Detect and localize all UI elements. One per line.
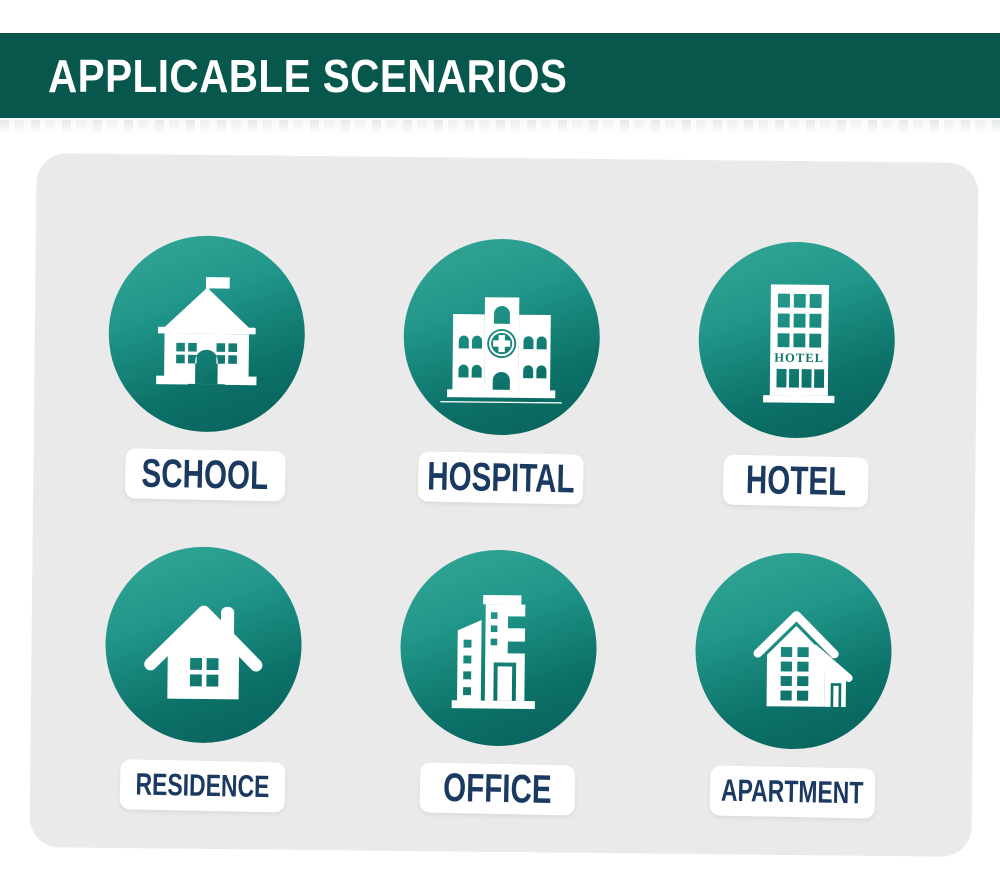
scenarios-panel: SCHOOL HOSPITAL [29,153,978,857]
scenario-cell-school: SCHOOL [90,235,323,501]
hotel-building-icon: HOTEL [730,273,863,406]
school-icon-circle [108,235,306,433]
scenario-label: RESIDENCE [135,767,270,806]
label-pill-school: SCHOOL [125,448,286,501]
header-banner: APPLICABLE SCENARIOS [0,33,1000,118]
hospital-icon-circle [403,238,601,436]
hotel-icon-circle: HOTEL [698,241,896,439]
scenario-label: APARTMENT [721,773,864,812]
hotel-sign-text: HOTEL [774,351,824,366]
torn-edge-decoration [0,120,1000,135]
apartment-icon-circle [694,552,892,750]
hospital-building-icon [435,270,568,403]
scenario-label: HOTEL [745,458,846,505]
label-pill-hotel: HOTEL [722,455,868,508]
school-building-icon [140,267,273,400]
residence-house-icon [137,578,270,711]
page-title: APPLICABLE SCENARIOS [48,49,567,103]
scenario-cell-hotel: HOTEL HOTEL [680,241,913,507]
office-building-icon [432,581,565,714]
apartment-building-icon [727,584,860,717]
label-pill-residence: RESIDENCE [119,759,285,812]
scenario-cell-apartment: APARTMENT [677,552,910,818]
scenario-label: OFFICE [442,765,551,812]
scenario-label: HOSPITAL [426,454,574,502]
residence-icon-circle [104,546,302,744]
label-pill-office: OFFICE [419,762,575,815]
scenario-cell-hospital: HOSPITAL [385,238,618,504]
scenario-cell-office: OFFICE [382,549,615,815]
label-pill-hospital: HOSPITAL [417,451,583,504]
scenario-cell-residence: RESIDENCE [87,546,320,812]
scenario-label: SCHOOL [142,451,270,499]
label-pill-apartment: APARTMENT [709,765,875,818]
office-icon-circle [399,549,597,747]
